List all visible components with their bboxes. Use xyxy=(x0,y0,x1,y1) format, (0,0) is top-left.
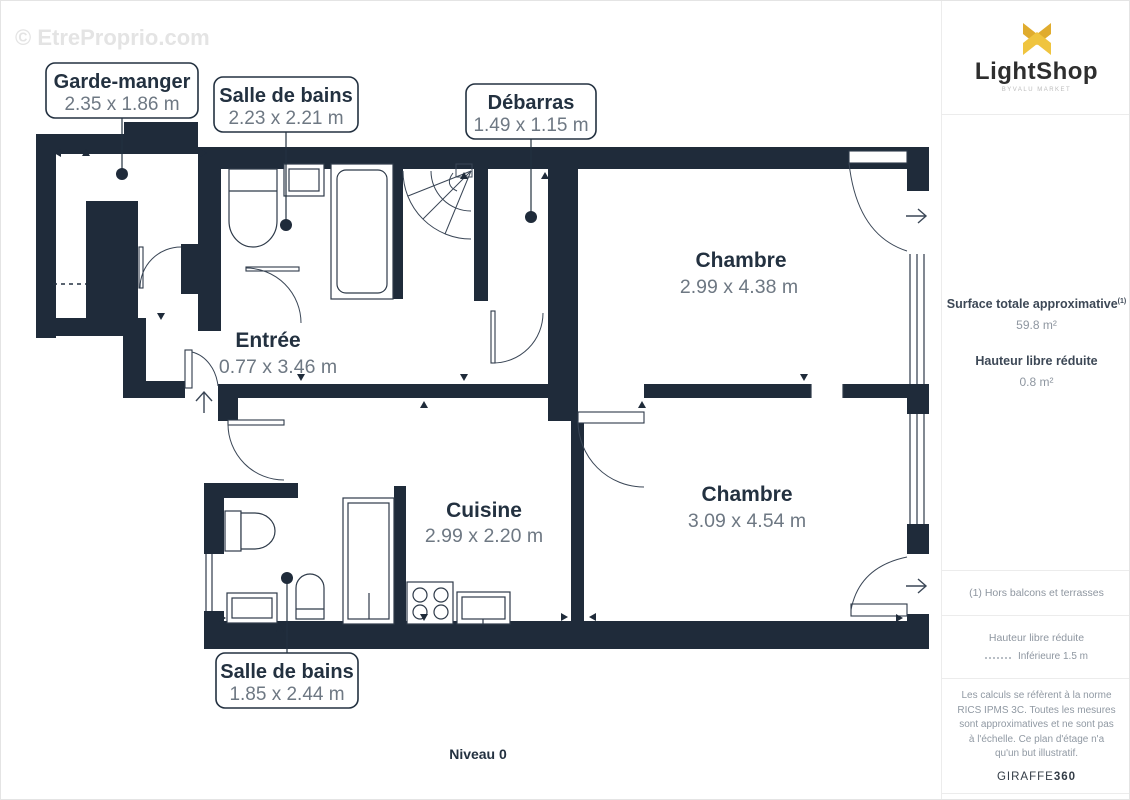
room-name: Garde-manger xyxy=(54,71,191,93)
room-name: Chambre xyxy=(695,249,786,272)
footnote-block: (1) Hors balcons et terrasses xyxy=(942,571,1130,616)
room-name: Salle de bains xyxy=(220,661,353,683)
room-dims: 2.99 x 4.38 m xyxy=(680,276,798,298)
room-name: Cuisine xyxy=(446,499,522,522)
watermark: © EtreProprio.com xyxy=(15,25,210,50)
room-dims: 2.35 x 1.86 m xyxy=(64,94,179,115)
room-label-debarras: Débarras 1.49 x 1.15 m xyxy=(466,84,596,139)
room-dims: 0.77 x 3.46 m xyxy=(219,356,337,378)
room-dims: 3.09 x 4.54 m xyxy=(688,510,806,532)
walls xyxy=(36,122,929,649)
room-name: Chambre xyxy=(701,483,792,506)
sidebar-spacer xyxy=(942,794,1130,800)
exit-arrow-top-icon xyxy=(906,209,926,223)
room-label-cuisine: Cuisine 2.99 x 2.20 m xyxy=(425,499,543,547)
staircase-icon xyxy=(403,164,472,239)
room-name: Débarras xyxy=(488,92,575,114)
surface-total-value: 59.8 m² xyxy=(1016,318,1057,332)
legend-item: Inférieure 1.5 m xyxy=(1018,651,1088,662)
legend-block: Hauteur libre réduite Inférieure 1.5 m xyxy=(942,616,1130,679)
room-dims: 1.85 x 2.44 m xyxy=(229,684,344,705)
room-label-chambre-bas: Chambre 3.09 x 4.54 m xyxy=(688,483,806,532)
footnote-text: (1) Hors balcons et terrasses xyxy=(969,587,1104,599)
brand-block: LightShop BYVALU MARKET xyxy=(942,1,1130,115)
bathroom-bottom-fixtures xyxy=(225,498,394,624)
footnote-ref: (1) xyxy=(1118,297,1127,304)
room-label-entree: Entrée 0.77 x 3.46 m xyxy=(219,329,337,378)
room-label-salle-de-bains-bas: Salle de bains 1.85 x 2.44 m xyxy=(216,653,358,708)
room-dims: 1.49 x 1.15 m xyxy=(473,115,588,136)
reduced-height-label: Hauteur libre réduite xyxy=(975,354,1097,368)
disclaimer-text: Les calculs se réfèrent à la norme RICS … xyxy=(956,689,1117,762)
window-bathroom-left xyxy=(206,554,212,611)
room-label-salle-de-bains-haut: Salle de bains 2.23 x 2.21 m xyxy=(214,77,358,132)
brand-tagline: BYVALU MARKET xyxy=(1002,87,1071,93)
dotted-line-icon xyxy=(985,655,1011,659)
floorplan-page: © EtreProprio.com xyxy=(0,0,1130,800)
room-dims: 2.23 x 2.21 m xyxy=(228,108,343,129)
exit-arrow-bottom-icon xyxy=(906,579,926,593)
room-name: Entrée xyxy=(235,329,300,352)
summary-block: Surface totale approximative(1) 59.8 m² … xyxy=(942,115,1130,571)
disclaimer-block: Les calculs se réfèrent à la norme RICS … xyxy=(942,679,1130,794)
reduced-height-value: 0.8 m² xyxy=(1019,375,1053,389)
room-name: Salle de bains xyxy=(219,85,352,107)
window-right-top xyxy=(910,254,924,384)
window-right-bottom xyxy=(910,414,924,524)
window-inner-wall xyxy=(811,384,843,398)
info-sidebar: LightShop BYVALU MARKET Surface totale a… xyxy=(941,1,1130,800)
legend-title: Hauteur libre réduite xyxy=(989,632,1084,644)
provider-logo: GIRAFFE360 xyxy=(997,771,1076,783)
room-label-garde-manger: Garde-manger 2.35 x 1.86 m xyxy=(46,63,198,118)
lightshop-logo-icon xyxy=(1017,22,1057,56)
brand-name: LightShop xyxy=(975,58,1098,86)
bathroom-top-fixtures xyxy=(229,164,393,299)
floorplan-drawing: © EtreProprio.com xyxy=(1,1,941,800)
room-dims: 2.99 x 2.20 m xyxy=(425,525,543,547)
surface-total-label: Surface totale approximative(1) xyxy=(947,297,1126,311)
level-label: Niveau 0 xyxy=(449,746,507,762)
entry-arrow-icon xyxy=(196,392,212,413)
room-label-chambre-haut: Chambre 2.99 x 4.38 m xyxy=(680,249,798,298)
